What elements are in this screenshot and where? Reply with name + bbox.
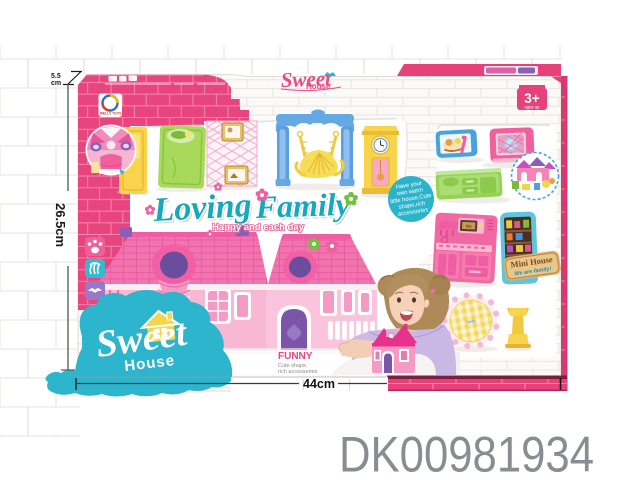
svg-text:FUNNY: FUNNY (278, 351, 313, 362)
svg-text:MS: MS (466, 224, 473, 229)
svg-text:5.5: 5.5 (51, 73, 61, 80)
svg-text:Family: Family (254, 186, 351, 225)
svg-text:DK00981934: DK00981934 (339, 427, 594, 480)
svg-text:Happy and each day: Happy and each day (212, 222, 305, 233)
svg-text:26.5cm: 26.5cm (53, 203, 68, 247)
svg-text:WELLY TOYS: WELLY TOYS (100, 112, 122, 116)
svg-text:rich accessories: rich accessories (278, 369, 318, 375)
svg-text:44cm: 44cm (303, 377, 335, 391)
svg-text:ages up: ages up (525, 105, 541, 110)
svg-text:cm: cm (51, 80, 61, 87)
